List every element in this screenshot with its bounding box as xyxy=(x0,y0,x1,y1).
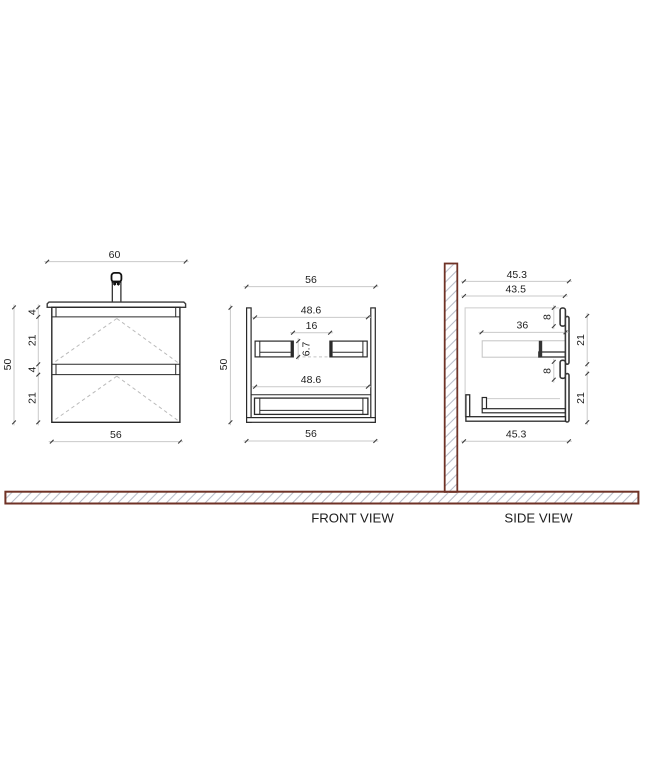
svg-text:FRONT VIEW: FRONT VIEW xyxy=(311,511,394,526)
svg-text:8: 8 xyxy=(541,368,553,374)
svg-text:60: 60 xyxy=(109,249,121,261)
svg-text:48.6: 48.6 xyxy=(301,374,322,386)
svg-text:45.3: 45.3 xyxy=(506,429,527,441)
svg-text:6.7: 6.7 xyxy=(301,341,313,356)
svg-text:43.5: 43.5 xyxy=(505,283,526,295)
svg-text:SIDE VIEW: SIDE VIEW xyxy=(504,511,573,526)
svg-text:50: 50 xyxy=(218,359,230,371)
svg-text:4: 4 xyxy=(26,367,38,373)
svg-text:16: 16 xyxy=(306,320,318,332)
svg-text:21: 21 xyxy=(26,392,38,404)
svg-text:50: 50 xyxy=(2,359,14,371)
svg-text:4: 4 xyxy=(26,309,38,315)
svg-text:21: 21 xyxy=(26,334,38,346)
svg-text:21: 21 xyxy=(575,392,587,404)
svg-text:48.6: 48.6 xyxy=(301,305,322,317)
svg-text:56: 56 xyxy=(305,428,317,440)
svg-text:21: 21 xyxy=(575,334,587,346)
svg-text:56: 56 xyxy=(305,274,317,286)
svg-text:8: 8 xyxy=(541,314,553,320)
svg-text:56: 56 xyxy=(110,429,122,441)
svg-text:36: 36 xyxy=(517,320,529,332)
svg-text:45.3: 45.3 xyxy=(507,269,528,281)
